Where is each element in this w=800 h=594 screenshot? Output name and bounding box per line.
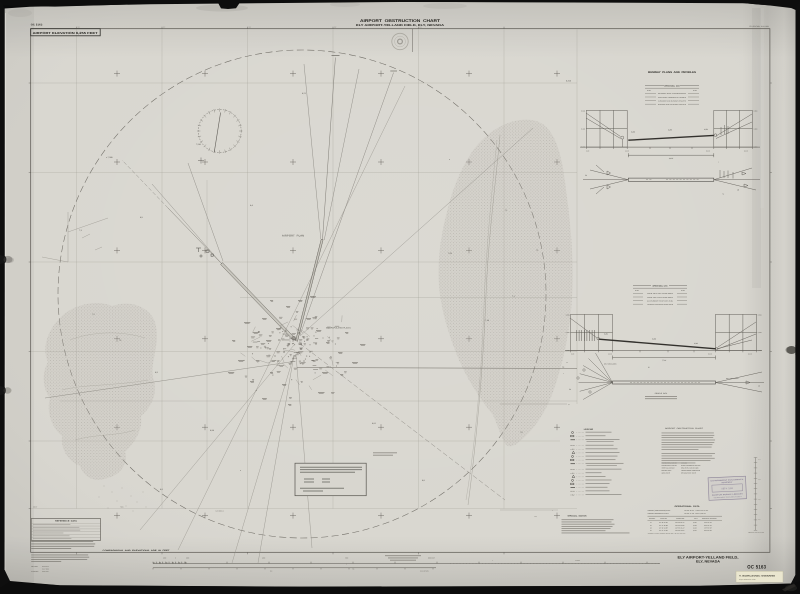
svg-text:6000 FEET: 6000 FEET (428, 557, 435, 559)
svg-text:6,4: 6,4 (759, 459, 761, 461)
svg-text:684: 684 (163, 27, 165, 29)
svg-text:AUG 1991: AUG 1991 (42, 571, 49, 573)
svg-text:6,3: 6,3 (759, 479, 761, 481)
svg-text:80+00: 80+00 (748, 354, 752, 356)
svg-text:7,241: 7,241 (196, 143, 202, 146)
svg-text:6,2: 6,2 (759, 499, 761, 501)
svg-text:T. BURLIN/OC 0565/098: T. BURLIN/OC 0565/098 (739, 575, 776, 578)
svg-text:30: 30 (569, 388, 571, 391)
svg-text:36: 36 (650, 530, 652, 532)
svg-text:6,2: 6,2 (568, 404, 570, 406)
svg-text:39° 17' 45.88": 39° 17' 45.88" (659, 525, 668, 527)
svg-text:1000: 1000 (186, 557, 189, 559)
svg-text:REFERENCE DATA: REFERENCE DATA (55, 520, 78, 523)
svg-text:179° 55' 40": 179° 55' 40" (704, 527, 712, 529)
svg-text:OC 5163: OC 5163 (31, 24, 43, 27)
svg-text:80+00: 80+00 (744, 150, 748, 152)
svg-text:304° 18' 30": 304° 18' 30" (704, 525, 712, 527)
svg-text:6,253: 6,253 (693, 530, 697, 532)
svg-text:20+00: 20+00 (625, 150, 629, 152)
svg-text:20+00: 20+00 (608, 354, 612, 356)
svg-text:7,1: 7,1 (566, 362, 568, 364)
svg-text:696: 696 (419, 27, 421, 29)
svg-text:x 6,1: x 6,1 (534, 516, 537, 518)
svg-text:x 6,2: x 6,2 (571, 472, 575, 475)
svg-text:6,310: 6,310 (566, 80, 572, 83)
svg-text:114° 50' 54.37": 114° 50' 54.37" (675, 522, 685, 524)
svg-text:114° 50' 29.62": 114° 50' 29.62" (675, 530, 685, 532)
svg-text:39° 17' 12.46": 39° 17' 12.46" (659, 530, 668, 532)
svg-text:SEP 4 1991: SEP 4 1991 (721, 487, 734, 491)
svg-text:124° 18' 30": 124° 18' 30" (704, 522, 712, 524)
svg-text:4000: 4000 (345, 557, 348, 559)
svg-text:OPERATIONAL DATA: OPERATIONAL DATA (675, 505, 701, 508)
svg-text:PROFILE DATA: PROFILE DATA (655, 392, 668, 395)
svg-text:680: 680 (78, 27, 80, 29)
svg-text:x 6,2: x 6,2 (571, 494, 575, 497)
svg-text:39° 18' 07.65": 39° 18' 07.65" (659, 522, 668, 524)
svg-text:T16N: T16N (120, 507, 123, 509)
svg-text:18: 18 (737, 189, 739, 192)
svg-text:6,255: 6,255 (693, 522, 697, 524)
svg-text:ELY, NEVADA: ELY, NEVADA (696, 560, 721, 564)
svg-text:4 346 000m N.: 4 346 000m N. (215, 511, 225, 513)
svg-text:114° 50' 24.23": 114° 50' 24.23" (675, 527, 685, 529)
svg-text:RUNWAY: RUNWAY (649, 518, 655, 520)
svg-text:ELEV: ELEV (694, 518, 698, 520)
svg-text:692: 692 (334, 27, 336, 29)
svg-text:36: 36 (585, 174, 587, 177)
svg-text:JULY 1988: JULY 1988 (42, 569, 49, 571)
svg-text:MAGNETIC BEARING: MAGNETIC BEARING (702, 518, 717, 520)
svg-text:LONGITUDE: LONGITUDE (676, 518, 684, 520)
svg-text:RUNWAY PLANS AND PROFILES: RUNWAY PLANS AND PROFILES (648, 71, 696, 74)
svg-text:2 MILES: 2 MILES (575, 560, 580, 562)
svg-text:39° 18' 14.85": 39° 18' 14.85" (659, 527, 668, 529)
svg-text:LEGEND: LEGEND (584, 428, 594, 431)
svg-text:0+00: 0+00 (586, 150, 589, 152)
svg-text:x: x (449, 158, 450, 161)
svg-text:COMPARISONS AND ELEVATIONS: COMPARISONS AND ELEVATIONS ARE IN FEET (103, 549, 171, 552)
svg-text:500: 500 (270, 571, 272, 573)
svg-text:x: x (240, 469, 241, 472)
svg-text:114° 49' 59.68": 114° 49' 59.68" (675, 525, 685, 527)
svg-text:x 7,086: x 7,086 (106, 156, 113, 159)
svg-text:*RUNWAY 12 END, RUNWAY 30 END: *RUNWAY 12 END, RUNWAY 30 END AND THE EL… (648, 533, 686, 535)
svg-text:688: 688 (249, 27, 251, 29)
svg-text:LATITUDE: LATITUDE (660, 518, 667, 520)
svg-text:AIRPORT ELEVATION 6,255 FEET: AIRPORT ELEVATION 6,255 FEET (33, 31, 98, 35)
svg-text:2000: 2000 (262, 557, 265, 559)
svg-text:x 6,2: x 6,2 (571, 448, 575, 451)
svg-text:6,248: 6,248 (693, 527, 697, 529)
svg-text:18: 18 (650, 527, 652, 529)
svg-text:VERTICAL SCALE 1:12,000: VERTICAL SCALE 1:12,000 (748, 532, 764, 534)
svg-text:735: 735 (352, 569, 355, 571)
svg-text:30: 30 (650, 525, 652, 527)
svg-text:12: 12 (650, 522, 652, 524)
svg-text:AIRPORT PLAN: AIRPORT PLAN (282, 235, 304, 238)
svg-text:OC 5163: OC 5163 (747, 565, 766, 571)
svg-text:359° 55' 40": 359° 55' 40" (704, 530, 712, 532)
svg-text:6,1: 6,1 (759, 519, 761, 521)
svg-text:0+00: 0+00 (571, 354, 574, 356)
svg-text:1000: 1000 (163, 557, 166, 559)
svg-text:ELY AIRPORT-YELLAND FIELD, ELY: ELY AIRPORT-YELLAND FIELD, ELY, NEVADA (356, 24, 444, 27)
svg-text:60+00: 60+00 (706, 150, 710, 152)
svg-text:OPERATIONAL DATA: OPERATIONAL DATA (664, 85, 680, 88)
svg-text:12: 12 (758, 384, 760, 387)
svg-text:60+00: 60+00 (708, 354, 712, 356)
svg-text:SPECIAL NOTES: SPECIAL NOTES (568, 514, 588, 517)
svg-text:RETOUCH: RETOUCH (42, 566, 49, 568)
svg-text:2000 METERS: 2000 METERS (420, 571, 429, 573)
svg-text:OPERATIONAL DATA: OPERATIONAL DATA (653, 285, 668, 288)
svg-text:6,248: 6,248 (693, 525, 697, 527)
svg-text:ELY (POPULATED PLACE): ELY (POPULATED PLACE) (326, 327, 351, 330)
svg-text:AIRPORT OBSTRUCTION CHART: AIRPORT OBSTRUCTION CHART (360, 18, 441, 23)
svg-text:AIRPORT OBSTRUCTION CHART: AIRPORT OBSTRUCTION CHART (665, 427, 704, 430)
svg-text:5TH EDITION JULY 1991: 5TH EDITION JULY 1991 (749, 25, 769, 28)
